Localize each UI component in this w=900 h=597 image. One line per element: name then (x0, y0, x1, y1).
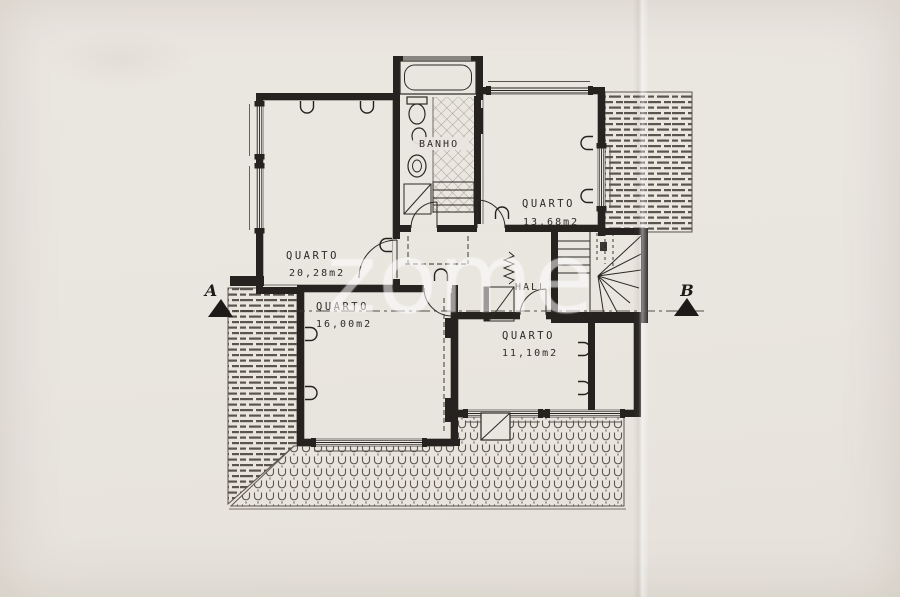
room-label-banho: BANHO (419, 139, 459, 150)
scanned-floorplan-page: BANHO QUARTO 20,28m2 QUARTO 13,68m2 QUAR… (0, 0, 900, 597)
doors (359, 200, 546, 316)
staircase (558, 232, 641, 316)
room-area-quarto-lower: 11,10m2 (502, 348, 558, 359)
room-labels: BANHO QUARTO 20,28m2 QUARTO 13,68m2 QUAR… (286, 139, 579, 359)
room-area-quarto-middle: 16,00m2 (316, 319, 372, 330)
floorplan-drawing: BANHO QUARTO 20,28m2 QUARTO 13,68m2 QUAR… (0, 0, 900, 597)
bathroom-tile-floor (433, 97, 474, 213)
room-label-quarto-lower: QUARTO (502, 330, 555, 342)
toilet-tank-icon (407, 97, 427, 104)
wall-lamp-icon (305, 387, 317, 400)
wall-lamp-icon (435, 269, 448, 281)
wall-lamp-icon (496, 207, 509, 219)
section-marker-b: B (679, 281, 694, 300)
room-label-quarto-left: QUARTO (286, 250, 339, 262)
hall-details (405, 236, 514, 321)
room-label-hall: HALL (515, 282, 547, 293)
door-left-bedroom (359, 240, 397, 278)
door-openings (393, 224, 546, 320)
chimney-box-icon (481, 413, 510, 440)
section-marker-a: A (203, 281, 217, 300)
bathroom-fixtures (400, 61, 476, 214)
room-area-quarto-right: 13,68m2 (523, 217, 579, 228)
wall-lamp-icon (581, 137, 593, 150)
wall-lamp-icon (361, 101, 374, 113)
section-triangle-b (674, 298, 699, 316)
toilet-icon (409, 104, 425, 124)
wall-lamp-icon (301, 101, 314, 113)
radiator-coil-icon (504, 252, 514, 284)
sink-icon (408, 155, 426, 177)
roof-hatch-top-right (605, 92, 692, 232)
room-label-quarto-right: QUARTO (522, 198, 575, 210)
wall-lamp-icon (581, 190, 593, 203)
door-right-bedroom (477, 200, 505, 228)
room-area-quarto-left: 20,28m2 (289, 268, 345, 279)
